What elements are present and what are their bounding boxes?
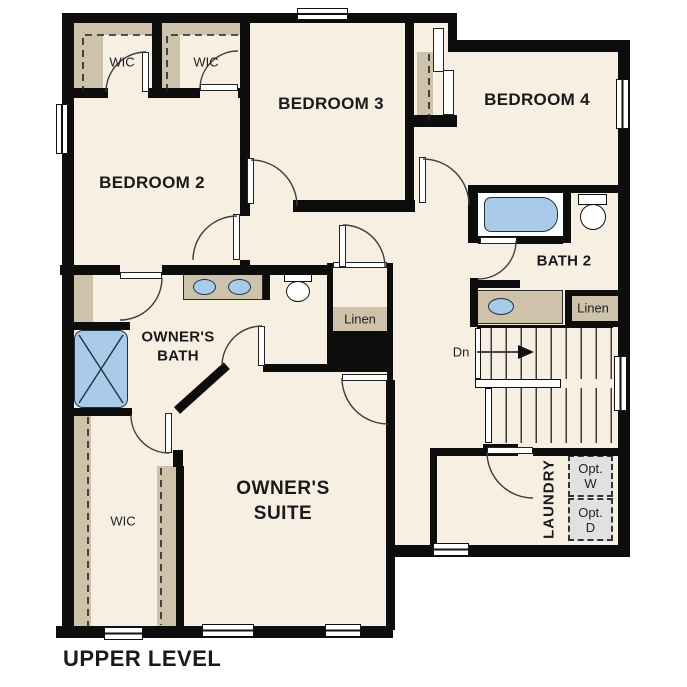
vanity-sink-right xyxy=(228,279,251,295)
wall xyxy=(470,280,520,288)
wall xyxy=(430,448,437,548)
vanity-sink-left xyxy=(193,279,216,295)
owners-toilet-bowl xyxy=(286,281,310,302)
wall xyxy=(173,450,183,467)
room-label-laundry: LAUNDRY xyxy=(541,459,558,539)
closet-label-linen-hall: Linen xyxy=(344,312,376,327)
wall xyxy=(263,364,333,372)
door-leaf-laundry xyxy=(487,447,533,454)
window xyxy=(297,8,348,20)
window xyxy=(202,624,254,637)
door-leaf-hall xyxy=(339,225,346,267)
door-leaf-wic3 xyxy=(165,413,172,453)
wall xyxy=(386,545,630,557)
optional-washer-box: Opt. W xyxy=(568,455,613,497)
plan-title: UPPER LEVEL xyxy=(63,646,221,672)
wall xyxy=(565,290,618,296)
door-leaf-wic2 xyxy=(200,84,238,91)
chase xyxy=(333,331,393,372)
room-label-bath2: BATH 2 xyxy=(537,253,592,270)
window xyxy=(616,79,629,129)
room-label-bedroom3: BEDROOM 3 xyxy=(278,94,384,114)
exterior-bottom-right xyxy=(395,557,687,657)
wall xyxy=(293,200,415,212)
opt-washer-line2: W xyxy=(584,476,596,491)
window xyxy=(325,624,361,637)
window xyxy=(104,627,143,640)
stairs-upper-flight xyxy=(477,328,613,379)
wall xyxy=(386,380,395,630)
wall xyxy=(62,408,132,416)
wall xyxy=(387,263,393,380)
door-leaf-bedroom3 xyxy=(247,158,254,204)
wall xyxy=(477,325,613,328)
stair-rail-middle xyxy=(475,379,561,388)
wall xyxy=(162,265,333,275)
wall xyxy=(62,322,130,330)
room-label-bedroom4: BEDROOM 4 xyxy=(484,90,590,110)
window xyxy=(614,356,627,411)
wall xyxy=(413,115,457,127)
wall xyxy=(563,190,571,243)
exterior-top-right xyxy=(457,0,687,40)
wic3-shelf-left xyxy=(74,415,91,628)
window xyxy=(56,104,68,154)
closet-label-wic3: WIC xyxy=(110,514,135,529)
room-label-owners-bath-1: OWNER'S xyxy=(141,329,214,346)
room-label-bedroom2: BEDROOM 2 xyxy=(99,173,205,193)
opt-washer-line1: Opt. xyxy=(578,461,603,476)
closet-label-linen-bath2: Linen xyxy=(577,301,609,316)
wall xyxy=(327,263,333,372)
wall xyxy=(176,466,184,631)
wall xyxy=(263,272,270,300)
closet-bypass-door xyxy=(443,70,454,115)
wall xyxy=(448,40,630,52)
wic1-shelf-left xyxy=(74,23,103,93)
optional-dryer-box: Opt. D xyxy=(568,498,613,541)
wall xyxy=(62,13,457,23)
room-label-owners-suite-2: SUITE xyxy=(254,503,312,525)
room-label-owners-suite-1: OWNER'S xyxy=(236,478,330,500)
bath2-sink xyxy=(488,298,514,315)
door-leaf-wic1 xyxy=(142,52,149,92)
wall xyxy=(470,185,630,193)
wall xyxy=(468,185,478,243)
wall xyxy=(148,88,200,98)
bath2-toilet-bowl xyxy=(580,204,606,230)
stairs-down-label: Dn xyxy=(453,345,470,360)
door-leaf-toilet-alcove xyxy=(258,326,265,366)
wall xyxy=(60,265,120,275)
wall xyxy=(437,448,486,456)
shower xyxy=(74,330,128,408)
stairs-lower-flight xyxy=(492,388,613,443)
door-leaf-bedroom2 xyxy=(233,214,240,260)
door-leaf-bath2 xyxy=(480,237,517,244)
wic3-shelf-right xyxy=(157,466,176,626)
wall xyxy=(62,88,108,98)
wall xyxy=(533,448,623,456)
stair-rail-left xyxy=(485,388,492,443)
wall xyxy=(152,23,162,97)
closet-label-wic2: WIC xyxy=(193,55,218,70)
window xyxy=(433,543,469,556)
opt-dryer-line1: Opt. xyxy=(578,505,603,520)
door-leaf-owners-bath xyxy=(120,272,162,279)
opt-dryer-line2: D xyxy=(586,520,595,535)
bathtub xyxy=(484,197,558,232)
door-leaf-bedroom4 xyxy=(419,157,426,203)
stair-rail-top xyxy=(475,328,481,379)
room-label-owners-bath-2: BATH xyxy=(157,348,199,365)
floor-plan: Opt. W Opt. D xyxy=(0,0,687,687)
closet-bypass-door xyxy=(433,28,444,72)
closet-label-wic1: WIC xyxy=(109,55,134,70)
wic2-shelf-left xyxy=(162,23,180,93)
bath-closet-shelf xyxy=(74,275,93,325)
door-leaf-owners-suite xyxy=(342,374,388,381)
wall xyxy=(405,13,414,212)
